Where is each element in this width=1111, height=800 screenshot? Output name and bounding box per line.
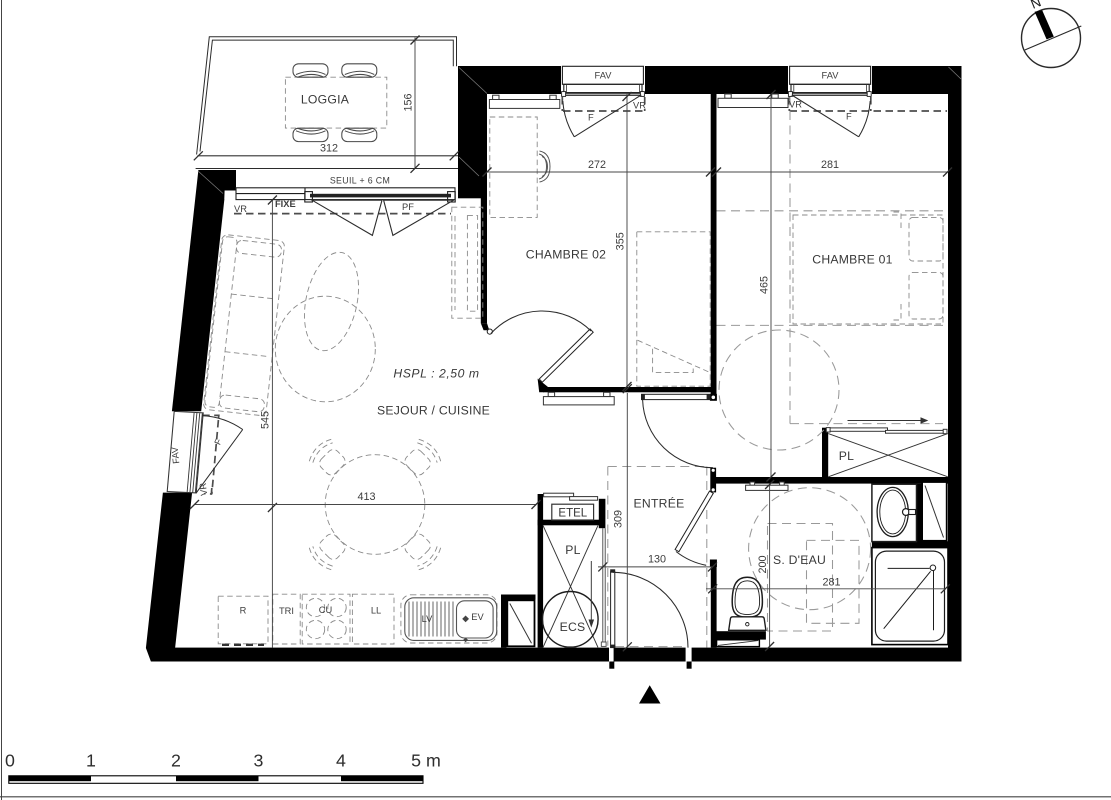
svg-text:FAV: FAV [595,71,613,81]
svg-text:LOGGIA: LOGGIA [301,93,350,107]
svg-text:3: 3 [254,750,264,770]
svg-text:F: F [588,113,594,123]
svg-text:0: 0 [5,750,15,770]
svg-text:VR: VR [234,204,247,214]
svg-text:4: 4 [336,750,346,770]
svg-text:F: F [846,112,852,122]
svg-text:SEJOUR / CUISINE: SEJOUR / CUISINE [377,404,490,418]
svg-text:413: 413 [357,491,375,503]
svg-text:VR: VR [633,101,646,111]
svg-text:FAV: FAV [170,446,182,465]
svg-text:HSPL : 2,50 m: HSPL : 2,50 m [393,367,479,381]
svg-text:FAV: FAV [822,71,840,81]
svg-text:ETEL: ETEL [558,507,587,519]
svg-text:VR: VR [789,100,802,110]
svg-text:VR: VR [198,482,209,496]
svg-text:312: 312 [320,143,338,155]
svg-text:130: 130 [648,554,666,566]
svg-text:5 m: 5 m [411,750,441,770]
svg-text:PL: PL [839,449,854,463]
svg-text:R: R [240,606,247,616]
svg-text:ECS: ECS [560,620,586,634]
svg-text:FIXE: FIXE [275,199,296,209]
svg-text:1: 1 [86,750,96,770]
svg-text:S. D'EAU: S. D'EAU [773,553,826,567]
svg-text:465: 465 [759,276,771,294]
svg-text:CHAMBRE 02: CHAMBRE 02 [526,248,606,262]
svg-text:SEUIL + 6 CM: SEUIL + 6 CM [330,176,390,186]
svg-text:EV: EV [471,612,484,622]
svg-text:CHAMBRE 01: CHAMBRE 01 [812,253,892,267]
svg-text:2: 2 [171,750,181,770]
svg-text:CU: CU [319,605,332,615]
svg-text:272: 272 [588,159,606,171]
svg-text:309: 309 [613,510,625,528]
svg-text:281: 281 [821,159,839,171]
svg-text:355: 355 [615,232,627,250]
svg-text:TRI: TRI [279,606,294,616]
svg-text:200: 200 [757,555,769,573]
svg-text:PF: PF [402,202,414,212]
svg-text:545: 545 [260,411,272,429]
svg-text:156: 156 [403,93,415,111]
svg-text:PL: PL [565,543,580,557]
svg-text:LL: LL [371,606,381,616]
svg-text:281: 281 [822,576,840,588]
svg-text:LV: LV [422,614,433,624]
svg-text:ENTRÉE: ENTRÉE [634,496,685,511]
